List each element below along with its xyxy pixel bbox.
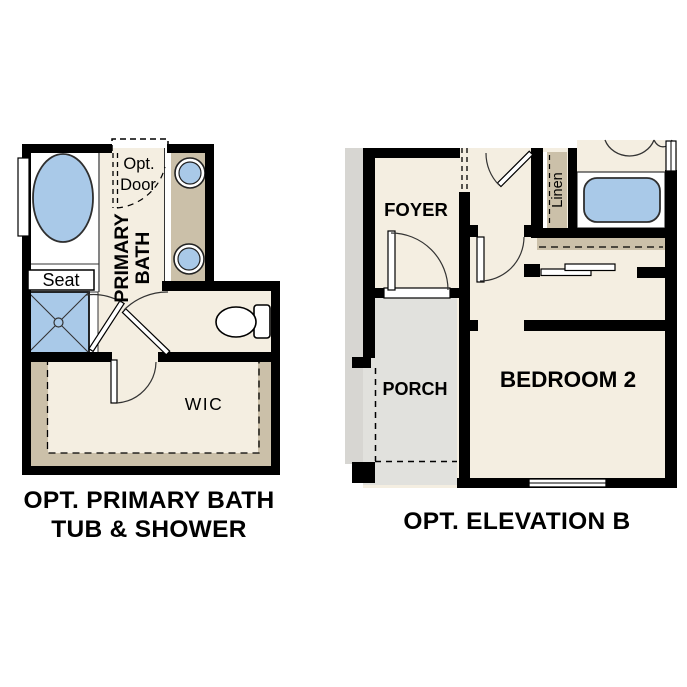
wic-label: WIC (185, 394, 224, 414)
linen-label: Linen (550, 172, 566, 207)
left-plan-title-line2: TUB & SHOWER (51, 516, 247, 543)
opt-door-label-line1: Opt. (123, 155, 154, 173)
foyer-label: FOYER (384, 199, 448, 220)
right-plan: FOYER PORCH BEDROOM 2 Linen OPT. ELEVATI… (345, 140, 677, 535)
wic-door-leaf (111, 360, 117, 403)
left-plan: Seat Opt. Door PRIMARY BATH WIC OPT. PRI… (18, 139, 280, 543)
shower-drain (54, 318, 63, 327)
porch-label: PORCH (382, 379, 447, 399)
exterior-strip (345, 148, 363, 464)
toilet-fixture (216, 307, 256, 337)
bedroom-door-leaf (477, 237, 484, 282)
bathtub2-fixture (584, 178, 660, 222)
primary-bath-label-line2: BATH (132, 232, 154, 285)
left-plan-title-line1: OPT. PRIMARY BATH (23, 487, 274, 514)
front-door-leaf (388, 231, 395, 290)
floorplan-drawing: Seat Opt. Door PRIMARY BATH WIC OPT. PRI… (0, 0, 687, 687)
bathtub-fixture (33, 154, 93, 242)
seat-label: Seat (42, 270, 79, 290)
bedroom-label: BEDROOM 2 (500, 367, 636, 392)
opt-door-label-line2: Door (120, 176, 156, 194)
closet-shelf (537, 237, 665, 250)
floorplan-sheet: Seat Opt. Door PRIMARY BATH WIC OPT. PRI… (0, 0, 687, 687)
wic-floor (48, 356, 258, 453)
closet-bypass-door-right (565, 264, 615, 271)
primary-bath-label-line1: PRIMARY (111, 213, 133, 302)
window-icon (18, 158, 29, 236)
right-plan-title: OPT. ELEVATION B (403, 508, 630, 535)
